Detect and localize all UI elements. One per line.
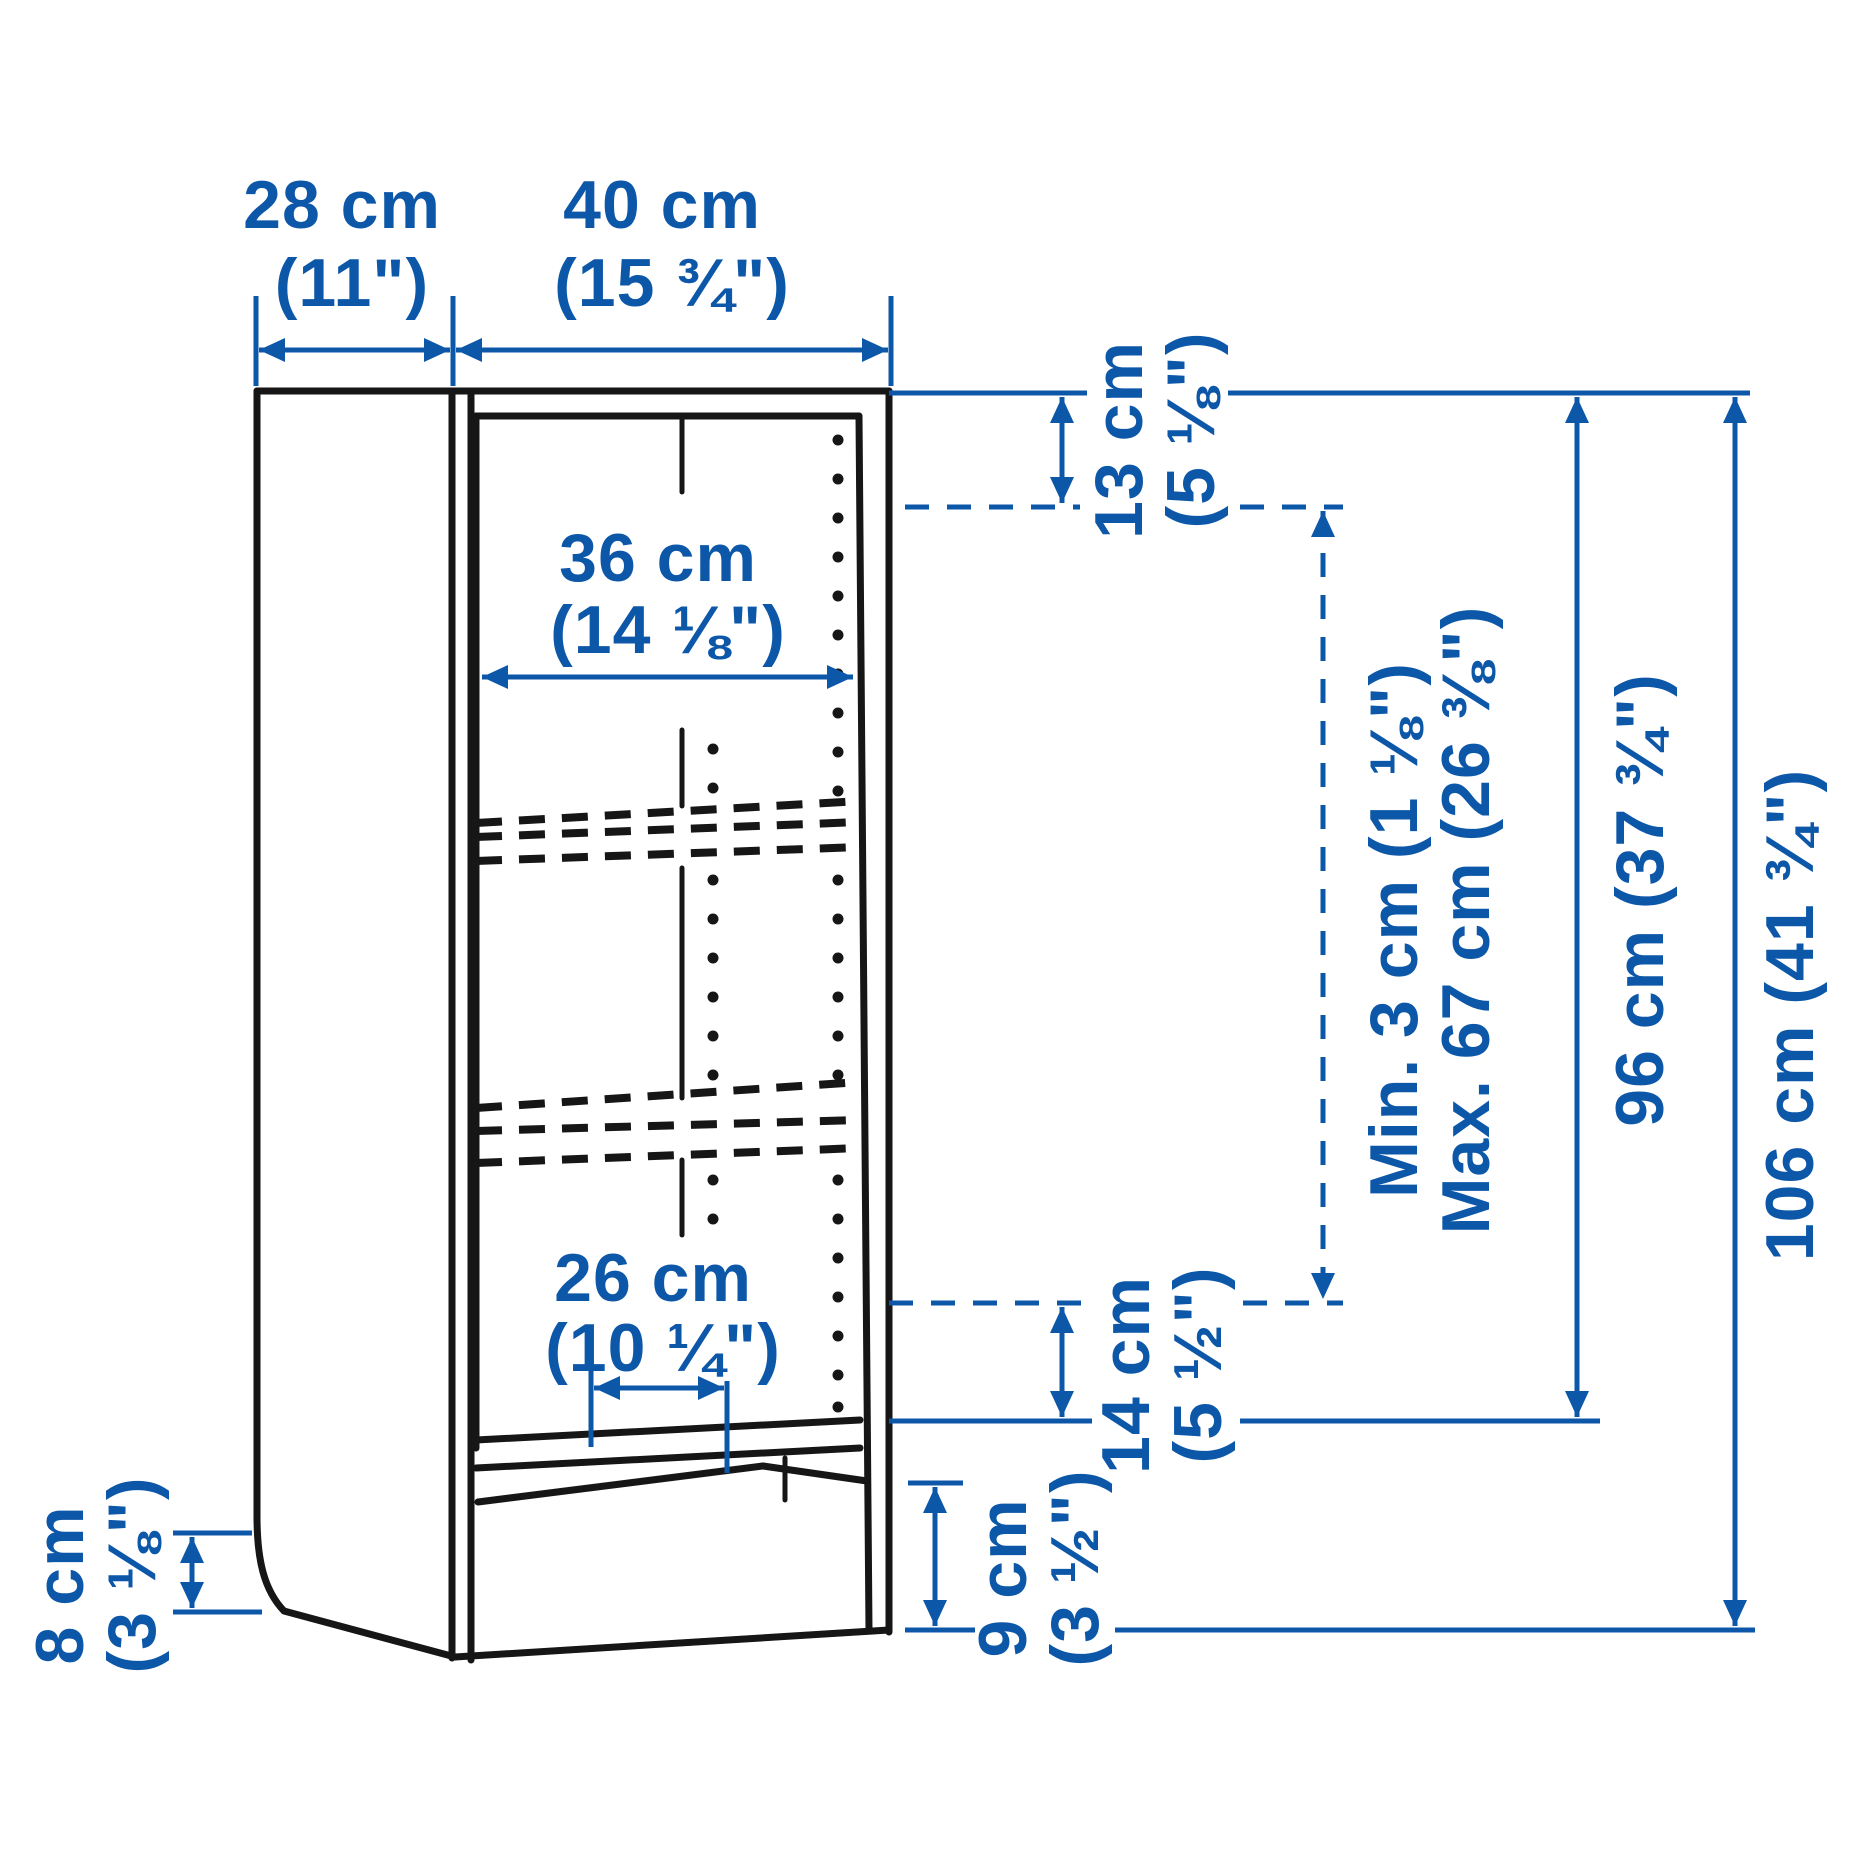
dim-top-shelf-offset: 13 cm (5 ⅛") xyxy=(889,321,1750,539)
bookcase-dimension-diagram: 28 cm (11") 40 cm (15 ¾") 36 cm (14 ⅛") xyxy=(0,0,1860,1860)
diagram-canvas: 28 cm (11") 40 cm (15 ¾") 36 cm (14 ⅛") xyxy=(0,0,1860,1860)
dim-bottom-shelf-offset: 14 cm (5 ½") xyxy=(889,1256,1600,1474)
dim-upper-section-height-label: 96 cm (37 ¾") xyxy=(1602,673,1678,1126)
dim-bottom-shelf-offset-label: 14 cm (5 ½") xyxy=(1088,1256,1236,1474)
dim-upper-section-height: 96 cm (37 ¾") xyxy=(1577,397,1678,1417)
dim-total-height-label: 106 cm (41 ¾") xyxy=(1752,769,1828,1261)
cabinet-floor-edge xyxy=(455,1630,889,1657)
dim-depth-label: 28 cm (11") xyxy=(243,167,461,321)
dim-base-cutout: 8 cm (3 ⅛") xyxy=(22,1477,262,1674)
dim-base-cutout-label: 8 cm (3 ⅛") xyxy=(22,1477,170,1674)
dim-depth: 28 cm (11") xyxy=(243,167,461,386)
dim-total-height: 106 cm (41 ¾") xyxy=(1735,397,1828,1626)
dim-interior-width-label: 36 cm (14 ⅛") xyxy=(550,520,786,668)
shelf-pin-holes-front-row xyxy=(833,435,844,1413)
adjustable-shelf-upper xyxy=(476,801,860,861)
dim-width: 40 cm (15 ¾") xyxy=(456,167,891,386)
dim-top-shelf-offset-label: 13 cm (5 ⅛") xyxy=(1081,321,1229,539)
dim-plinth-height: 9 cm (3 ½") xyxy=(905,1470,1755,1667)
dim-shelf-adjust: Min. 3 cm (1 ⅛") Max. 67 cm (26 ⅜") xyxy=(1323,511,1504,1299)
dim-shelf-depth-label: 26 cm (10 ¼") xyxy=(545,1240,781,1386)
cabinet-left-back-edge xyxy=(257,391,455,1657)
dim-width-label: 40 cm (15 ¾") xyxy=(554,167,790,321)
dim-interior-width: 36 cm (14 ⅛") xyxy=(482,520,853,677)
dim-shelf-adjust-label: Min. 3 cm (1 ⅛") Max. 67 cm (26 ⅜") xyxy=(1356,606,1504,1235)
bottom-shelf-and-plinth xyxy=(476,1420,867,1502)
dim-plinth-height-label: 9 cm (3 ½") xyxy=(965,1470,1113,1667)
adjustable-shelf-lower xyxy=(476,1082,860,1163)
